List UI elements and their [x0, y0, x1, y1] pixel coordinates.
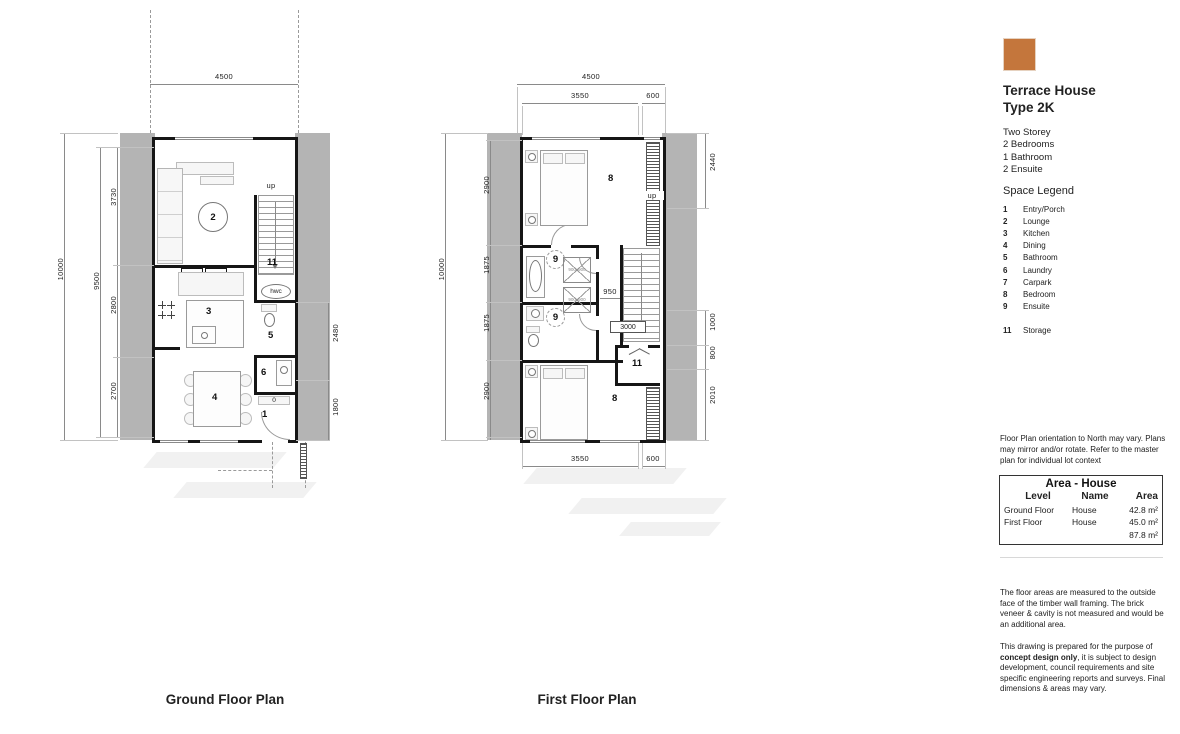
lamp	[528, 216, 536, 224]
dimension-label: 2900	[482, 176, 491, 194]
extension-line	[296, 380, 330, 381]
dimension-label: 600	[630, 454, 676, 463]
extension-line	[642, 443, 643, 469]
legend-item: 3Kitchen	[1003, 227, 1163, 239]
dimension-line	[517, 84, 665, 85]
extension-line	[667, 440, 709, 441]
legend-item: 7Carpark	[1003, 276, 1163, 288]
sink-tap	[201, 332, 208, 339]
hwc-label: hwc	[270, 288, 282, 295]
area-table: Area - House Level Name Area Ground Floo…	[999, 475, 1163, 545]
room-number-dashed-circle: 9	[546, 308, 565, 327]
dimension-label: 600	[630, 91, 676, 100]
dimension-label: 4500	[150, 72, 298, 81]
concept-design-note: This drawing is prepared for the purpose…	[1000, 642, 1170, 695]
table-cell: Ground Floor	[1004, 504, 1072, 517]
legend-num: 5	[1003, 253, 1023, 262]
interior-wall	[254, 195, 257, 300]
table-cell: House	[1072, 516, 1118, 529]
legend-label: Ensuite	[1023, 302, 1050, 311]
extension-line	[667, 208, 709, 209]
table-header: Area	[1118, 491, 1158, 504]
legend-item: 9Ensuite	[1003, 301, 1163, 313]
extension-line	[665, 87, 666, 133]
party-wall	[487, 133, 522, 440]
interior-wall	[155, 347, 180, 350]
pillow	[543, 368, 563, 379]
up-label: up	[640, 191, 664, 200]
sheet-title: Terrace House Type 2K	[1003, 83, 1096, 116]
pillow	[565, 368, 585, 379]
extension-line	[486, 140, 522, 141]
extension-line	[522, 106, 523, 135]
room-label-laundry: 6	[261, 367, 266, 378]
toilet-bowl	[264, 313, 275, 327]
legend-num: 4	[1003, 241, 1023, 250]
interior-wall	[615, 383, 660, 386]
area-table-header-row: Level Name Area	[1000, 491, 1162, 504]
room-label-kitchen: 3	[206, 306, 211, 317]
cooktop-burner	[158, 301, 166, 309]
extension-line	[60, 133, 118, 134]
extension-line	[667, 133, 709, 134]
media-unit	[176, 162, 234, 175]
lamp	[528, 430, 536, 438]
boundary-dashed-line	[272, 442, 273, 488]
window	[644, 137, 660, 140]
table-row: First Floor House 45.0 m²	[1000, 516, 1162, 529]
dimension-label: 3730	[109, 188, 118, 206]
legend-item: 8Bedroom	[1003, 288, 1163, 300]
bath-basin	[529, 260, 542, 292]
legend-num: 7	[1003, 278, 1023, 287]
extension-line	[296, 302, 330, 303]
ground-floor-title: Ground Floor Plan	[125, 692, 325, 707]
extension-line	[667, 345, 709, 346]
extension-line	[667, 369, 709, 370]
party-wall	[295, 133, 330, 440]
interior-wall	[648, 345, 660, 348]
cooktop-burner	[167, 311, 175, 319]
dimension-line	[642, 103, 665, 104]
orientation-note: Floor Plan orientation to North may vary…	[1000, 434, 1168, 466]
window	[530, 440, 585, 443]
spec-list: Two Storey 2 Bedrooms 1 Bathroom 2 Ensui…	[1003, 127, 1054, 176]
extension-line	[667, 310, 709, 311]
table-cell: First Floor	[1004, 516, 1072, 529]
sheet-title-line2: Type 2K	[1003, 100, 1096, 117]
pillow	[543, 153, 563, 164]
dimension-tag-label: 3000	[620, 324, 636, 331]
dimension-line	[642, 466, 665, 467]
wardrobe	[646, 387, 660, 440]
dimension-label: 1000	[708, 313, 717, 331]
legend-num: 9	[1003, 302, 1023, 311]
dimension-label: 3550	[522, 91, 638, 100]
space-legend-heading: Space Legend	[1003, 185, 1074, 197]
interior-wall	[596, 330, 599, 363]
note-text-bold: concept design only	[1000, 653, 1077, 662]
kitchen-counter	[178, 272, 244, 296]
first-floor-plan: 11 up 8 9 900x900 900x900 9	[420, 10, 740, 535]
vanity-basin	[531, 309, 540, 318]
window	[600, 440, 640, 443]
extension-line	[486, 437, 522, 438]
floor-area-note: The floor areas are measured to the outs…	[1000, 588, 1170, 630]
extension-line	[638, 443, 639, 469]
dimension-line	[522, 103, 638, 104]
sheet-title-line1: Terrace House	[1003, 83, 1096, 100]
dimension-label: 2700	[109, 382, 118, 400]
separator-line	[1000, 557, 1163, 558]
legend-item: 1Entry/Porch	[1003, 203, 1163, 215]
legend-item: 2Lounge	[1003, 215, 1163, 227]
table-cell: 45.0 m²	[1118, 516, 1158, 529]
fence-hatch	[300, 443, 307, 479]
table-row: Ground Floor House 42.8 m²	[1000, 504, 1162, 517]
window	[175, 137, 253, 140]
legend-label: Bathroom	[1023, 253, 1058, 262]
extension-line	[441, 133, 488, 134]
pillow	[565, 153, 585, 164]
toilet-bowl	[528, 334, 539, 347]
room-label-ensuite: 9	[553, 254, 558, 265]
lamp	[528, 153, 536, 161]
dimension-line	[600, 298, 620, 299]
dimension-line	[64, 133, 65, 440]
legend-num: 11	[1003, 326, 1023, 335]
hot-water-cylinder: hwc	[261, 284, 291, 299]
dimension-label: 2480	[331, 324, 340, 342]
dimension-label: 2900	[482, 382, 491, 400]
legend-label: Lounge	[1023, 217, 1050, 226]
dimension-line	[705, 133, 706, 208]
stair-arrow	[641, 253, 642, 325]
legend-item: 6Laundry	[1003, 264, 1163, 276]
dimension-label: 2010	[708, 386, 717, 404]
dimension-label: 4500	[517, 72, 665, 81]
first-floor-title: First Floor Plan	[487, 692, 687, 707]
extension-line	[96, 437, 154, 438]
room-label-ensuite: 9	[553, 312, 558, 323]
table-header: Level	[1004, 491, 1072, 504]
entry-shelf-label: 0	[272, 397, 276, 404]
legend-item: 5Bathroom	[1003, 252, 1163, 264]
legend-label: Kitchen	[1023, 229, 1050, 238]
dimension-line	[328, 302, 329, 440]
stair-arrow	[275, 202, 276, 264]
legend-label: Dining	[1023, 241, 1046, 250]
table-cell	[1004, 529, 1072, 542]
dimension-label: 2440	[708, 153, 717, 171]
spec-line: Two Storey	[1003, 127, 1054, 139]
interior-wall	[596, 245, 599, 259]
dimension-label: 1875	[482, 314, 491, 332]
party-wall	[120, 133, 155, 440]
extension-line	[113, 265, 154, 266]
dimension-label: 800	[708, 346, 717, 359]
extension-line	[113, 357, 154, 358]
dimension-line	[522, 466, 638, 467]
extension-line	[486, 302, 522, 303]
cooktop-burner	[167, 301, 175, 309]
dimension-label: 9500	[92, 272, 101, 290]
dimension-label: 1875	[482, 256, 491, 274]
dimension-label: 10000	[56, 258, 65, 280]
entry-shelf: 0	[258, 396, 290, 405]
extension-line	[638, 106, 639, 135]
table-header: Name	[1072, 491, 1118, 504]
lamp	[528, 368, 536, 376]
interior-wall	[523, 360, 623, 363]
interior-wall	[254, 355, 295, 358]
interior-wall	[254, 300, 295, 303]
legend-num: 8	[1003, 290, 1023, 299]
boundary-dashed-line	[218, 470, 272, 471]
legend-item: 4Dining	[1003, 240, 1163, 252]
extension-line	[296, 440, 330, 441]
legend-item: 11Storage	[1003, 325, 1163, 337]
interior-wall	[615, 347, 618, 385]
type-color-swatch	[1003, 38, 1036, 71]
up-label: up	[256, 181, 286, 190]
extension-line	[522, 443, 523, 469]
legend-label: Carpark	[1023, 278, 1051, 287]
legend-num: 2	[1003, 217, 1023, 226]
room-label-dining: 4	[212, 392, 217, 403]
extension-line	[642, 106, 643, 135]
room-label-bathroom: 5	[268, 330, 273, 341]
legend-label: Entry/Porch	[1023, 205, 1065, 214]
room-label-bedroom: 8	[612, 393, 617, 404]
room-number-circle: 2	[198, 202, 228, 232]
legend-label: Bedroom	[1023, 290, 1055, 299]
table-cell: 42.8 m²	[1118, 504, 1158, 517]
cooktop-burner	[158, 311, 166, 319]
shower-size-label: 900x900	[563, 267, 591, 272]
window	[200, 440, 238, 443]
spec-line: 1 Bathroom	[1003, 152, 1054, 164]
room-label-lounge: 2	[210, 212, 215, 223]
table-row: 87.8 m²	[1000, 529, 1162, 542]
floor-plan-sheet: 2 up 11 hwc p fr 3 5 6	[0, 0, 1180, 734]
dimension-label: 1800	[331, 398, 340, 416]
sofa	[157, 168, 183, 264]
extension-line	[486, 360, 522, 361]
spec-line: 2 Ensuite	[1003, 164, 1054, 176]
room-label-storage: 11	[267, 257, 277, 268]
dimension-label: 950	[595, 287, 625, 296]
media-unit	[200, 176, 234, 185]
table-cell	[1072, 529, 1118, 542]
dimension-tag: 3000	[610, 321, 646, 333]
boundary-dashed-line	[298, 10, 299, 133]
entry-opening	[262, 440, 288, 443]
space-legend: 1Entry/Porch 2Lounge 3Kitchen 4Dining 5B…	[1003, 203, 1163, 337]
dimension-label: 2800	[109, 296, 118, 314]
extension-line	[60, 440, 118, 441]
extension-line	[96, 147, 154, 148]
extension-line	[517, 87, 518, 133]
party-wall	[662, 133, 697, 440]
legend-label: Laundry	[1023, 266, 1052, 275]
shower-size-label: 900x900	[563, 297, 591, 302]
interior-wall	[571, 245, 599, 248]
table-cell: 87.8 m²	[1118, 529, 1158, 542]
legend-label: Storage	[1023, 326, 1051, 335]
window	[532, 137, 600, 140]
spec-line: 2 Bedrooms	[1003, 139, 1054, 151]
area-table-title: Area - House	[1000, 478, 1162, 490]
dimension-line	[100, 147, 101, 437]
window	[160, 440, 188, 443]
dimension-label: 10000	[437, 258, 446, 280]
legend-num: 6	[1003, 266, 1023, 275]
laundry-tub-basin	[280, 366, 288, 374]
legend-num: 3	[1003, 229, 1023, 238]
dimension-line	[150, 84, 298, 85]
extension-line	[665, 443, 666, 469]
dimension-label: 3550	[522, 454, 638, 463]
toilet-cistern	[261, 304, 277, 312]
dimension-line	[705, 310, 706, 440]
room-label-bedroom: 8	[608, 173, 613, 184]
ground-floor-plan: 2 up 11 hwc p fr 3 5 6	[50, 10, 360, 535]
interior-wall	[523, 245, 551, 248]
extension-line	[441, 440, 488, 441]
room-label-storage: 11	[632, 358, 642, 369]
interior-wall	[254, 355, 257, 395]
legend-num: 1	[1003, 205, 1023, 214]
extension-line	[486, 245, 522, 246]
table-cell: House	[1072, 504, 1118, 517]
note-text: This drawing is prepared for the purpose…	[1000, 642, 1153, 651]
toilet-cistern	[526, 326, 540, 333]
dimension-line	[445, 133, 446, 440]
interior-wall	[254, 392, 295, 395]
